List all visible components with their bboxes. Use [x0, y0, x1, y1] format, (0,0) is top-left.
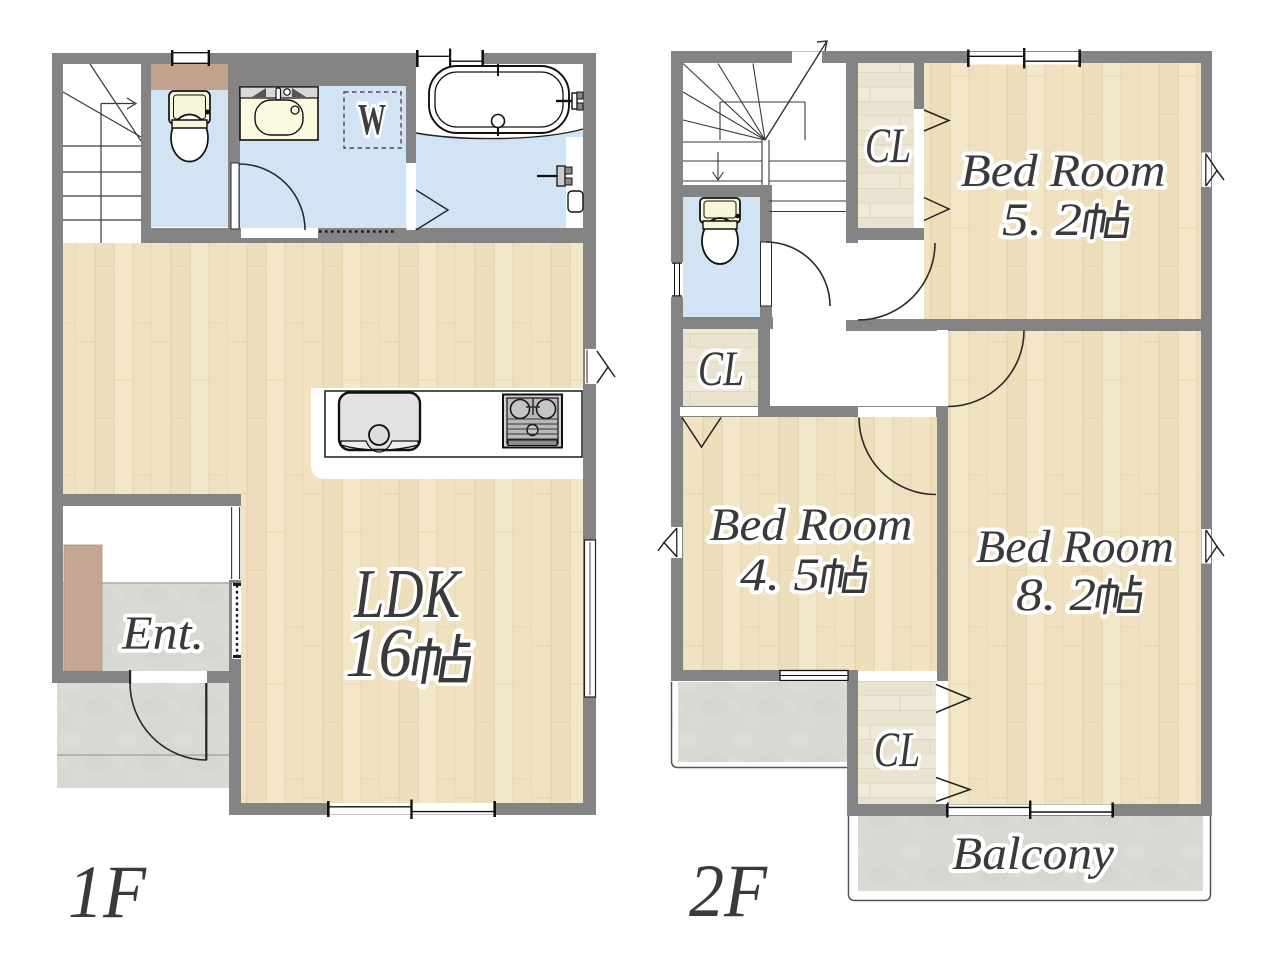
- svg-text:Bed Room: Bed Room: [976, 521, 1174, 573]
- svg-text:CL: CL: [698, 340, 744, 396]
- svg-text:Ent.: Ent.: [121, 607, 204, 660]
- svg-text:4. 5: 4. 5: [740, 549, 820, 601]
- svg-text:CL: CL: [874, 721, 920, 777]
- svg-text:CL: CL: [865, 117, 911, 173]
- svg-text:16: 16: [345, 615, 412, 692]
- svg-text:5. 2: 5. 2: [1002, 194, 1082, 246]
- svg-text:Bed Room: Bed Room: [961, 145, 1166, 197]
- svg-text:8. 2: 8. 2: [1016, 569, 1096, 621]
- svg-text:Balcony: Balcony: [952, 828, 1114, 880]
- svg-text:2F: 2F: [689, 850, 768, 933]
- svg-text:W: W: [358, 95, 386, 144]
- svg-text:Bed Room: Bed Room: [710, 499, 913, 551]
- svg-text:1F: 1F: [68, 851, 147, 934]
